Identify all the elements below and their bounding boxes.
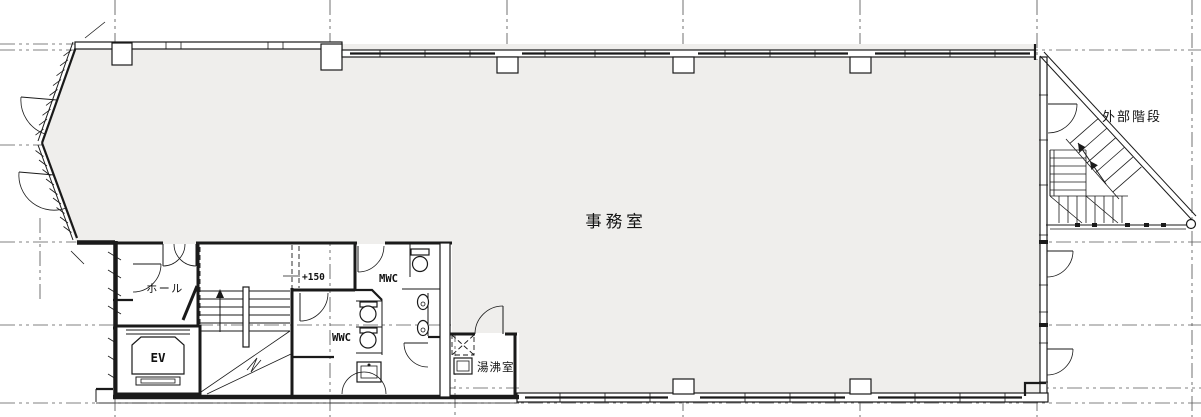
east-wall-door <box>1047 349 1073 375</box>
office-label: 事務室 <box>585 212 647 231</box>
east-wall-door <box>1047 251 1073 277</box>
womens-wc-label: WWC <box>332 332 351 344</box>
hall-double-door <box>163 244 196 266</box>
stair-up-arrow <box>216 289 224 298</box>
toilet <box>360 306 376 322</box>
toilet-tank <box>411 249 429 255</box>
wwc-door <box>300 293 328 321</box>
kitchenette-label: 湯沸室 <box>477 360 515 374</box>
column <box>112 43 132 65</box>
stair-up-arrow <box>1090 161 1098 170</box>
column <box>673 379 694 394</box>
mwc-door <box>358 246 384 272</box>
mwc-inner-door <box>404 343 428 367</box>
toilet <box>360 332 376 348</box>
wc-fixtures <box>357 249 429 382</box>
elevator-label: EV <box>150 350 166 365</box>
stair-stringer <box>243 287 249 347</box>
stair-break-line <box>247 358 261 372</box>
internal-stairs <box>199 246 300 394</box>
external-stair-door <box>1048 104 1077 133</box>
mens-wc-label: MWC <box>379 273 398 285</box>
hall-label: ホール <box>146 282 184 295</box>
column <box>850 57 871 73</box>
level-marker-label: +150 <box>302 272 325 283</box>
column <box>850 379 871 394</box>
toilet <box>413 257 428 272</box>
column <box>673 57 694 73</box>
column <box>321 44 342 70</box>
floor-plan: 事務室 外部階段 ホール EV MWC WWC +150 湯沸室 <box>0 0 1201 417</box>
external-stairs-label: 外部階段 <box>1102 110 1162 125</box>
external-stairs <box>1040 52 1196 229</box>
column <box>497 57 518 73</box>
